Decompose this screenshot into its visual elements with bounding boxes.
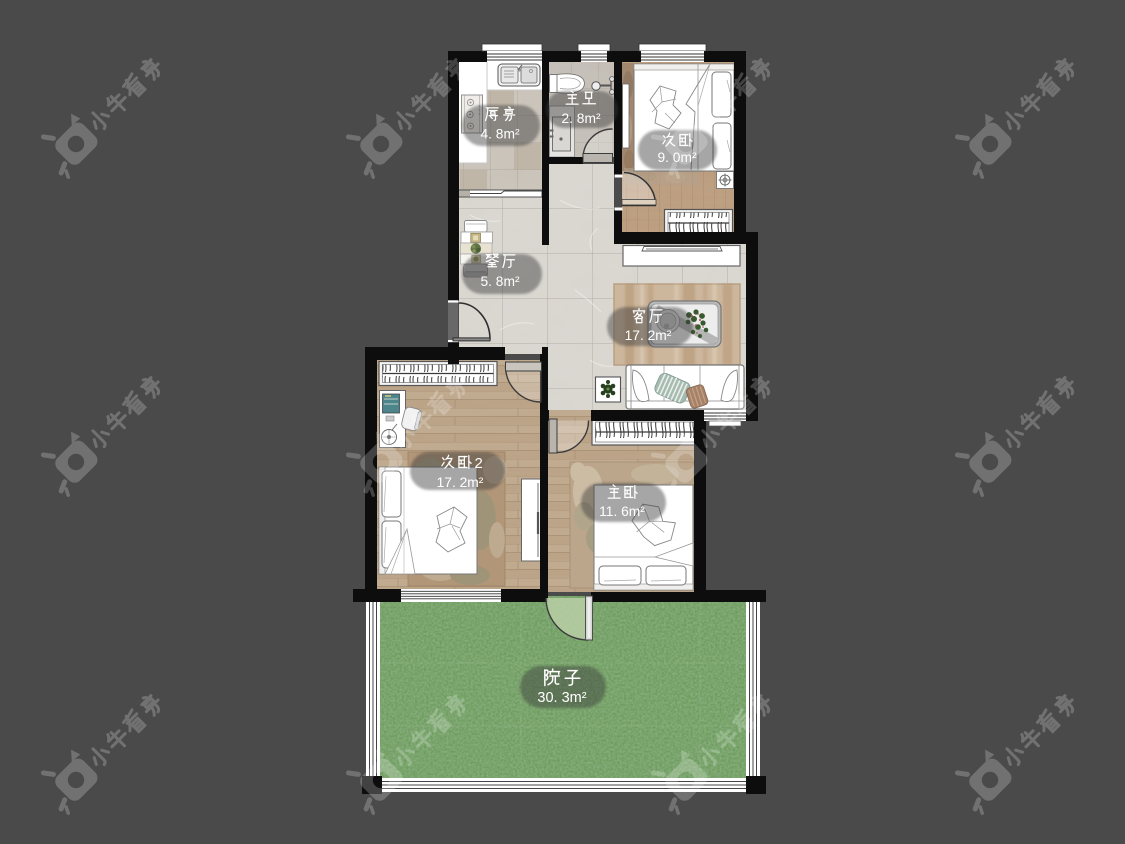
svg-text:2. 8m²: 2. 8m²	[561, 111, 601, 126]
svg-text:5. 8m²: 5. 8m²	[480, 274, 520, 289]
svg-text:4. 8m²: 4. 8m²	[480, 127, 520, 142]
svg-text:2: 2	[475, 455, 483, 472]
svg-text:17. 2m²: 17. 2m²	[625, 328, 672, 343]
svg-text:30. 3m²: 30. 3m²	[537, 690, 586, 706]
svg-text:11. 6m²: 11. 6m²	[599, 504, 645, 519]
svg-text:17. 2m²: 17. 2m²	[437, 475, 484, 490]
